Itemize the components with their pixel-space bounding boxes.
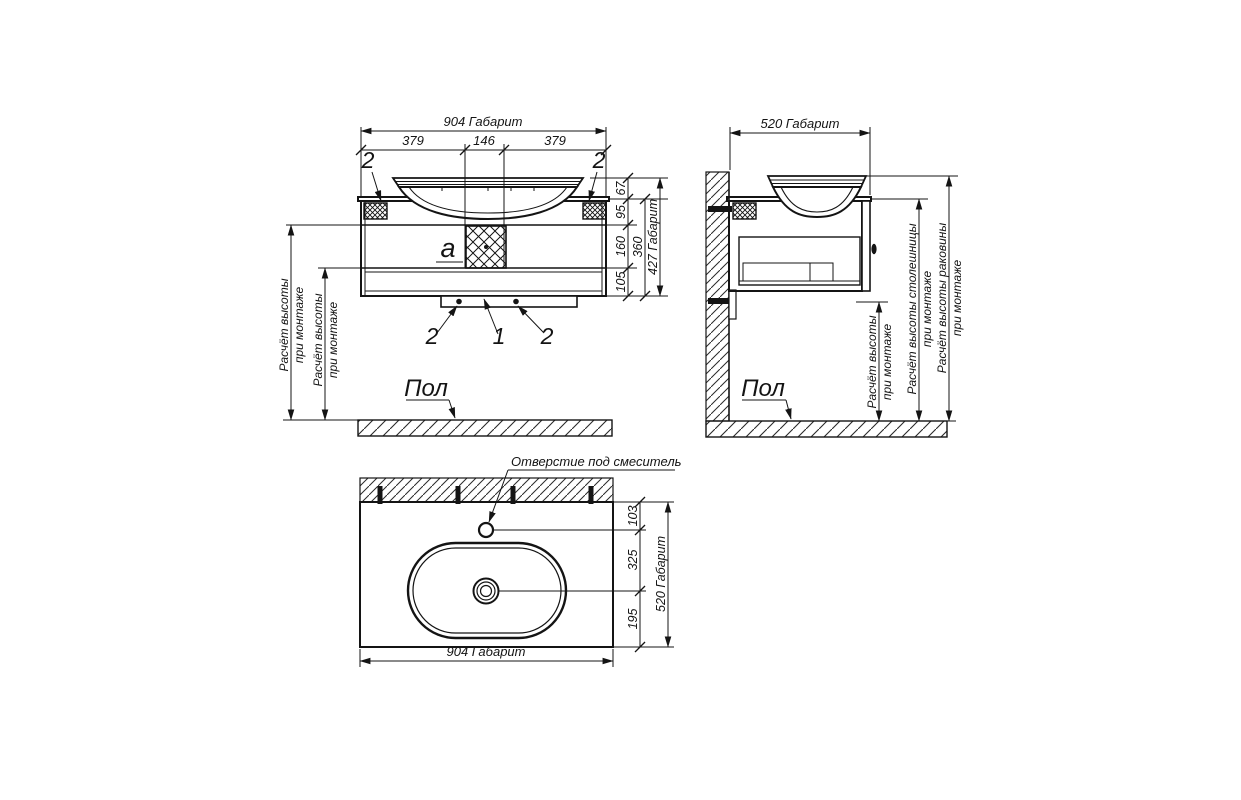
drawer-box: [739, 237, 860, 285]
callout-screw-left: 2: [425, 323, 439, 349]
side-note-height-1: Расчёт высоты: [865, 315, 879, 408]
callout-bracket-left: 2: [361, 147, 375, 173]
technical-drawing-sheet: 904 Габарит 379 146 379: [0, 0, 1241, 800]
dim-146: 146: [473, 133, 495, 148]
bracket-tab: [456, 486, 461, 504]
dim-195: 195: [626, 609, 640, 630]
sink-rim-side: [768, 176, 866, 187]
faucet-hole-label: Отверстие под смеситель: [511, 454, 682, 469]
dim-95: 95: [614, 205, 628, 219]
side-note-height-2: при монтаже: [880, 324, 894, 401]
bracket-tab: [511, 486, 516, 504]
lower-hanging-rail: [729, 290, 736, 319]
mounting-bracket-side: [733, 203, 756, 219]
mounting-bracket-left: [364, 203, 387, 219]
dim-379-right: 379: [544, 133, 566, 148]
plan-view: Отверстие под смеситель 103 325 195 520 …: [360, 454, 682, 667]
dim-overall-width-plan: 904 Габарит: [446, 644, 525, 659]
bracket-tab: [378, 486, 383, 504]
callout-rail: 1: [493, 323, 506, 349]
floor-label: Пол: [741, 375, 785, 402]
callout-screw-right: 2: [540, 323, 554, 349]
front-floor: Пол: [283, 375, 612, 436]
rail-screw-left: [456, 299, 462, 305]
dim-overall-height: 427 Габарит: [646, 199, 660, 275]
bottom-rail: [441, 296, 577, 307]
dim-67: 67: [614, 181, 628, 196]
side-view: 520 Габарит Расчёт высоты при монтаже Ра…: [706, 116, 964, 437]
door-knob: [871, 244, 876, 254]
wall-section-plan: [360, 478, 613, 502]
panel-a-label: a: [440, 233, 455, 263]
dim-105: 105: [614, 272, 628, 293]
side-note-countertop-2: при монтаже: [920, 271, 934, 348]
floor-section: [358, 420, 612, 436]
dim-360: 360: [631, 237, 645, 258]
vanity-drawing: 904 Габарит 379 146 379: [0, 0, 1241, 800]
mounting-bracket-right: [583, 203, 606, 219]
side-note-countertop-1: Расчёт высоты столешницы: [905, 223, 919, 394]
leader-line: [786, 400, 791, 419]
front-vessel-sink: [393, 178, 583, 219]
dim-160: 160: [614, 236, 628, 257]
panel-center-mark: [484, 245, 488, 249]
side-vessel-sink: [768, 176, 866, 217]
callout-bracket-right: 2: [592, 147, 606, 173]
install-note-line2: при монтаже: [326, 302, 340, 379]
leader-line: [518, 306, 544, 333]
dim-overall-depth: 520 Габарит: [760, 116, 839, 131]
rail-screw-right: [513, 299, 519, 305]
dim-103: 103: [626, 506, 640, 527]
dim-overall-width: 904 Габарит: [443, 114, 522, 129]
drawer-side: [739, 237, 860, 285]
side-note-basin-2: при монтаже: [950, 260, 964, 337]
side-note-basin-1: Расчёт высоты раковины: [935, 223, 949, 374]
sink-rim: [393, 178, 583, 187]
dim-325: 325: [626, 550, 640, 571]
dim-379-left: 379: [402, 133, 424, 148]
install-note-line2: при монтаже: [292, 287, 306, 364]
install-note-line1: Расчёт высоты: [311, 293, 325, 386]
side-install-height-dimensions: Расчёт высоты при монтаже Расчёт высоты …: [856, 176, 964, 421]
faucet-hole: [479, 523, 493, 537]
sink-bowl: [399, 187, 577, 219]
plan-depth-dimensions: 103 325 195 520 Габарит: [613, 497, 674, 652]
front-install-height-dimensions: Расчёт высоты при монтаже Расчёт высоты …: [277, 225, 361, 420]
leader-line: [437, 306, 457, 333]
install-note-line1: Расчёт высоты: [277, 278, 291, 371]
leader-line: [449, 400, 455, 418]
drawer-inner-box: [743, 263, 833, 281]
dim-overall-depth-plan: 520 Габарит: [654, 536, 668, 612]
floor-section: [706, 421, 947, 437]
bracket-tab: [589, 486, 594, 504]
door-front: [862, 201, 870, 291]
front-view: 904 Габарит 379 146 379: [277, 114, 668, 436]
floor-label: Пол: [404, 375, 448, 402]
